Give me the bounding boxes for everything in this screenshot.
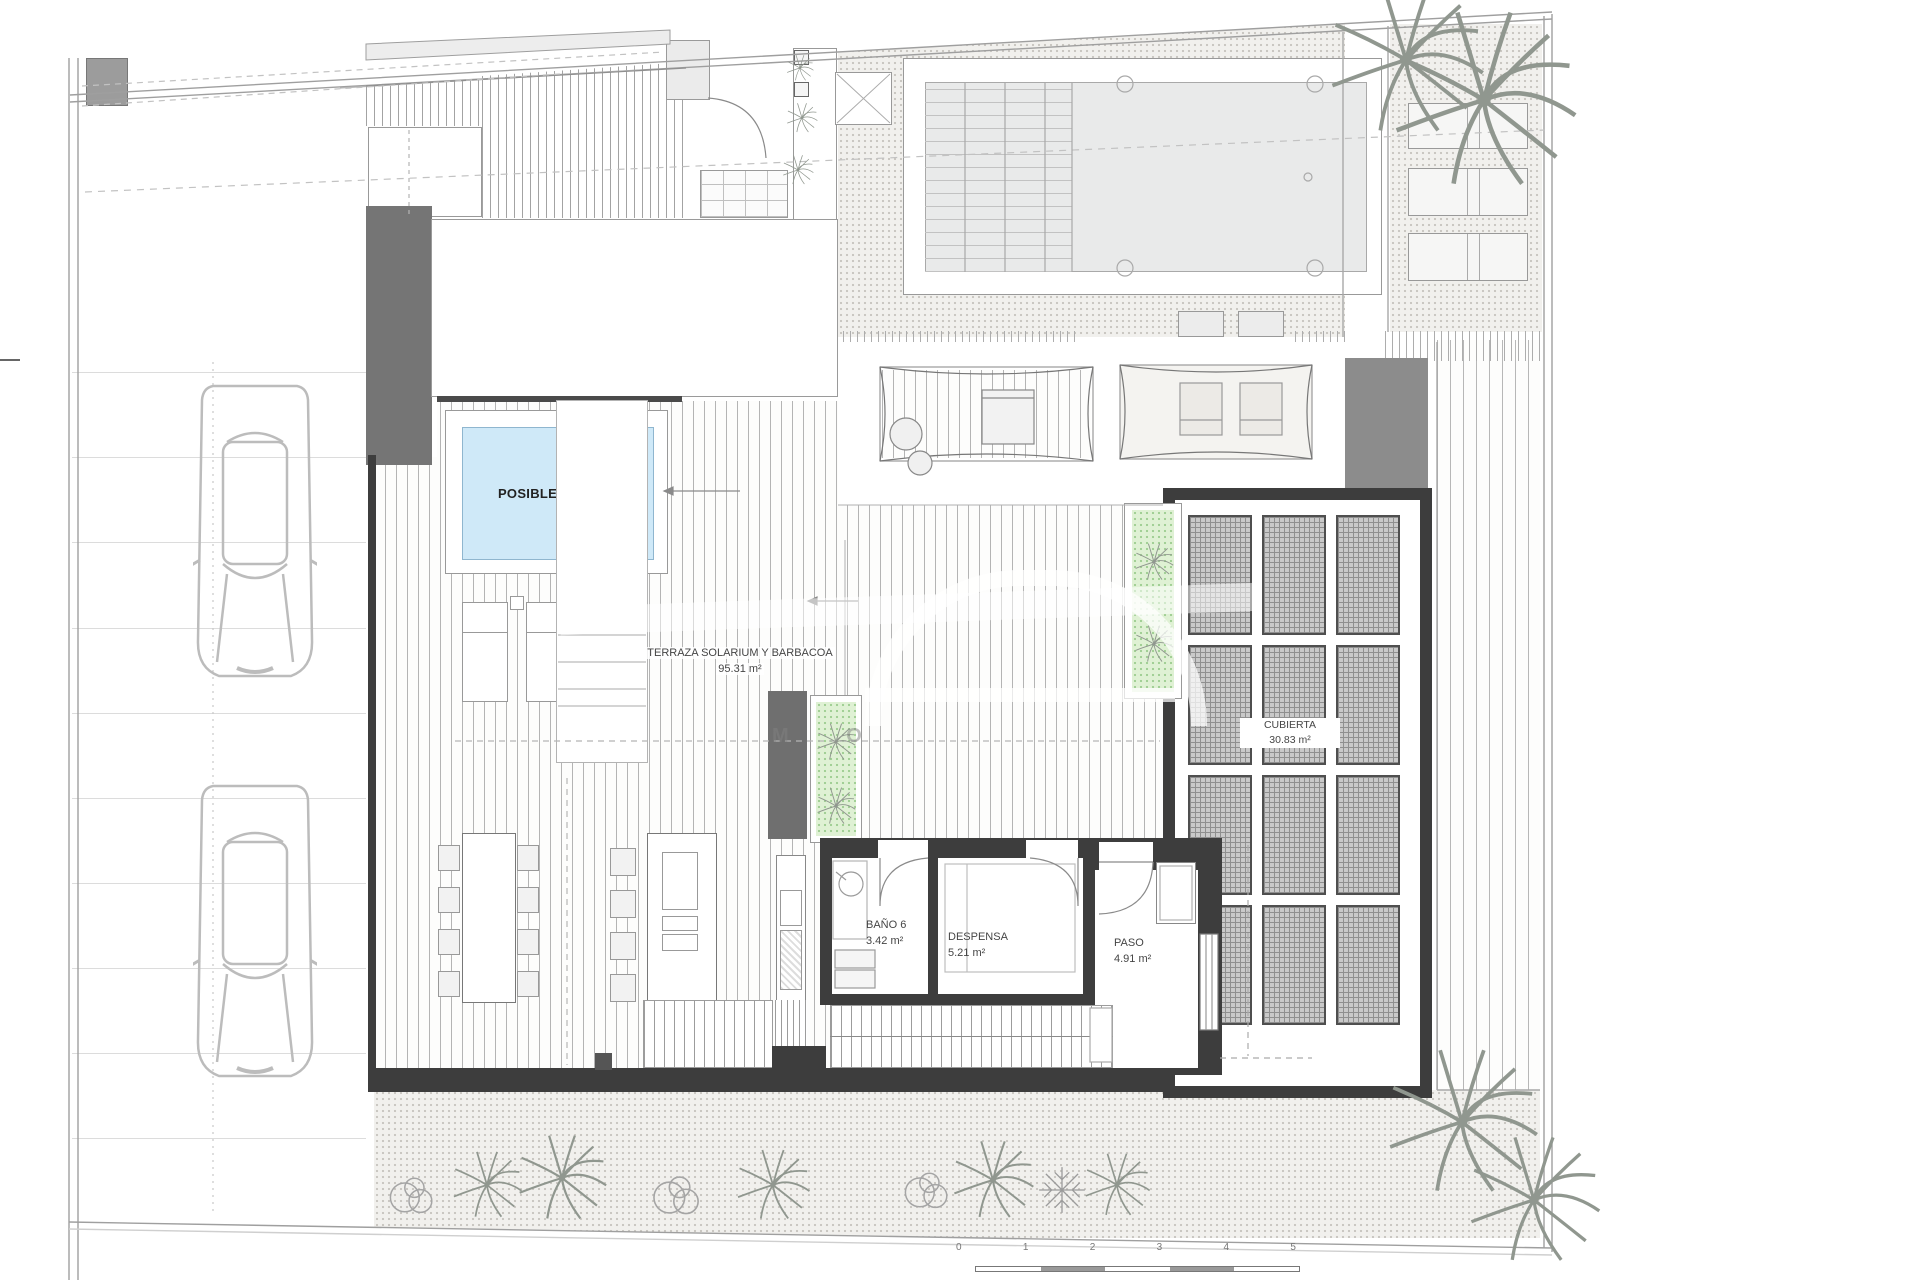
scalebar-number: 4 — [1224, 1242, 1230, 1253]
scalebar-number: 1 — [1023, 1242, 1029, 1253]
roof-edge-band — [340, 30, 686, 88]
scalebar-number: 0 — [956, 1242, 962, 1253]
scalebar-number: 3 — [1157, 1242, 1163, 1253]
scalebar-number: 2 — [1090, 1242, 1096, 1253]
scalebar-segment — [1041, 1267, 1106, 1271]
terrace-label: TERRAZA SOLARIUM Y BARBACOA 95.31 m² — [615, 646, 865, 678]
scalebar-numbers: 0 1 2 3 4 5 — [956, 1242, 1296, 1253]
bathroom6-label-text: BAÑO 6 — [866, 919, 906, 931]
bathroom6-label: BAÑO 6 3.42 m² — [866, 918, 906, 950]
terrace-label-text: TERRAZA SOLARIUM Y BARBACOA — [645, 647, 834, 659]
scalebar-segment — [1234, 1267, 1299, 1271]
bathroom-fixtures — [833, 861, 1218, 1062]
cover-label: CUBIERTA 30.83 m² — [1240, 718, 1340, 748]
lineart-overlay — [0, 0, 1920, 1280]
stair-void-lines — [558, 540, 845, 706]
direction-arrows — [664, 487, 858, 605]
pool-details — [965, 76, 1323, 276]
skylight-x-icon — [837, 74, 890, 123]
hall-label-text: PASO — [1114, 937, 1144, 949]
cover-area-text: 30.83 m² — [1269, 734, 1310, 746]
scalebar — [975, 1266, 1300, 1272]
scalebar-segment — [976, 1267, 1041, 1271]
terrace-area-text: 95.31 m² — [716, 663, 763, 675]
door-arcs — [880, 858, 1153, 914]
pantry-label-text: DESPENSA — [948, 931, 1008, 943]
cover-label-text: CUBIERTA — [1264, 719, 1316, 731]
dashed-reference-lines — [82, 52, 1545, 1212]
daybed — [880, 367, 1093, 475]
hall-area-text: 4.91 m² — [1114, 953, 1151, 965]
scalebar-segment — [1105, 1267, 1170, 1271]
car-icon — [188, 786, 322, 1076]
entry-door-arc — [708, 98, 766, 158]
car-icon — [188, 386, 322, 676]
daybed — [1120, 365, 1312, 459]
scalebar-segment — [1170, 1267, 1235, 1271]
pantry-area-text: 5.21 m² — [948, 947, 985, 959]
hall-label: PASO 4.91 m² — [1114, 936, 1151, 968]
bathroom6-area-text: 3.42 m² — [866, 935, 903, 947]
floor-plan-canvas: POSIBLE JACUZZI — [0, 0, 1920, 1280]
palm-icons — [783, 0, 1599, 1260]
pantry-label: DESPENSA 5.21 m² — [948, 930, 1008, 962]
scalebar-number: 5 — [1290, 1242, 1296, 1253]
garden-plants — [390, 1136, 1149, 1219]
